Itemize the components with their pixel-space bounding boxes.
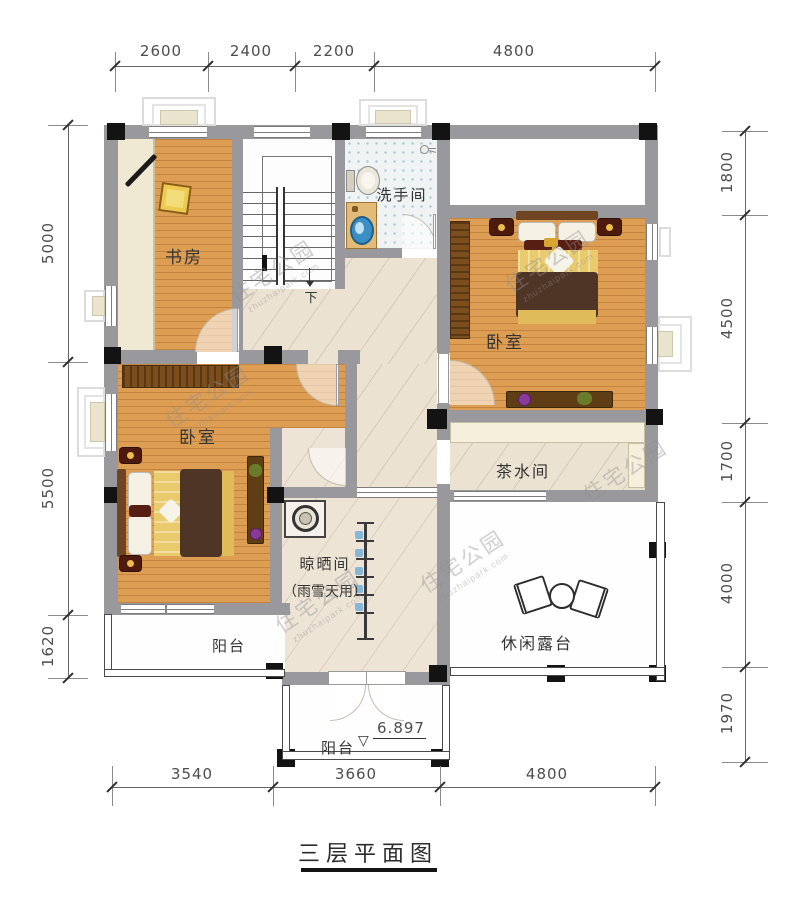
drying-rack-clip — [355, 531, 363, 539]
dim-left-1: 5000 — [39, 213, 57, 273]
stair-down-label: 下 — [300, 287, 324, 306]
hall-corridor-floor — [345, 364, 437, 488]
dim-line-top — [115, 66, 655, 67]
shower-spray — [429, 148, 436, 149]
room-label-bathroom: 洗手间 — [362, 184, 442, 205]
window-top-study — [149, 126, 207, 138]
column — [267, 487, 284, 503]
room-label-study: 书房 — [149, 243, 219, 268]
dim-top-3: 2200 — [304, 42, 364, 60]
room-label-balcony-left: 阳台 — [199, 635, 259, 656]
bench-plant — [249, 464, 262, 477]
bed-right-foot — [518, 310, 596, 324]
balcony-door-mullion — [366, 671, 367, 685]
wall-lamp-glow — [498, 224, 505, 231]
dim-left-3: 1620 — [39, 616, 57, 676]
window-bedroomL-divider — [165, 604, 167, 614]
elevation-triangle-icon: ▽ — [358, 733, 369, 749]
dim-top-2: 2400 — [221, 42, 281, 60]
wall-lamp-glow — [127, 452, 134, 459]
window-tea-bottom — [454, 491, 546, 501]
wall-bath-bottom — [345, 248, 402, 258]
bedroomL-door-leaf — [336, 364, 339, 406]
bathroom-door-leaf — [433, 214, 436, 249]
column — [646, 409, 663, 425]
column — [639, 123, 657, 140]
bench-flower — [250, 528, 262, 540]
dim-right-4: 4000 — [718, 553, 736, 613]
wall-vestibule-bottom — [282, 487, 357, 498]
study-cushion-inner — [165, 189, 185, 208]
balcony-left-rail-side — [104, 614, 112, 677]
bay-window-sill — [92, 296, 105, 316]
drying-rack-bar — [357, 638, 374, 640]
wall-lamp-glow — [127, 560, 134, 567]
dim-right-3: 1700 — [718, 431, 736, 491]
bay-window-sill — [160, 110, 198, 125]
tea-counter-top — [450, 422, 645, 443]
window-top-stair — [254, 126, 310, 138]
room-label-terrace: 休闲露台 — [477, 630, 597, 654]
balcony-door-frame — [328, 671, 406, 685]
bed-left-blanket — [180, 469, 222, 557]
drying-rack-bar — [356, 540, 374, 542]
bay-window-sill — [90, 402, 105, 442]
wardrobe-right-bedroom — [450, 221, 470, 339]
title-underline — [301, 868, 437, 872]
dim-bottom-3: 4800 — [517, 765, 577, 783]
elevation-line — [373, 738, 426, 739]
dim-bottom-1: 3540 — [162, 765, 222, 783]
window-right-lower — [646, 327, 658, 364]
window-left-lower — [105, 394, 117, 451]
bench-flower — [518, 393, 531, 406]
terrace-rail-right — [656, 502, 665, 681]
toilet-icon — [346, 170, 355, 192]
column — [332, 123, 350, 140]
dim-line-left — [68, 125, 69, 678]
dim-bottom-2: 3660 — [326, 765, 386, 783]
dim-right-1: 1800 — [718, 142, 736, 202]
wall-bedroomL-right — [270, 428, 282, 603]
wall-drying-bottom-a — [282, 672, 328, 685]
column — [429, 665, 447, 682]
floor-plan-canvas: 书房 洗手间 卧室 卧室 茶水间 晾晒间 （雨雪天用） 休闲露台 阳台 阳台 下… — [0, 0, 800, 897]
page-title: 三层平面图 — [288, 836, 448, 868]
terrace-table — [549, 583, 575, 609]
shower-icon — [420, 145, 429, 154]
dim-top-1: 2600 — [131, 42, 191, 60]
bed-left-foot — [222, 471, 234, 556]
dim-line-bottom — [112, 787, 655, 788]
sink-basin-highlight — [355, 222, 364, 234]
room-label-tea-room: 茶水间 — [483, 458, 563, 482]
washing-machine-drum-inner — [299, 512, 312, 525]
wall-stair-bath — [335, 139, 345, 289]
balcony-left-rail-bottom — [104, 669, 285, 677]
bed-left-headboard — [117, 469, 126, 557]
dim-top-4: 4800 — [484, 42, 544, 60]
window-right-upper — [646, 224, 658, 260]
drying-rack-bar — [356, 612, 374, 614]
wall-alcove-right — [345, 364, 357, 488]
terrace-rail-bottom — [450, 667, 665, 676]
dim-right-5: 1970 — [718, 683, 736, 743]
wall-bedroomR-left-a — [437, 125, 450, 353]
wall-bedroomR-bottom — [437, 410, 658, 422]
drying-rack-bar — [357, 522, 374, 524]
bench-plant — [577, 392, 592, 405]
bay-window-sill — [375, 110, 411, 124]
room-label-bedroom-right: 卧室 — [470, 328, 540, 353]
column — [107, 123, 125, 140]
window-left-upper — [105, 286, 117, 326]
column — [432, 123, 450, 140]
dim-left-2: 5500 — [39, 458, 57, 518]
window-drying-top — [357, 487, 437, 498]
balcony-front-rail-right — [442, 685, 450, 757]
sink-soap — [352, 206, 358, 212]
window-top-bath — [366, 126, 421, 138]
elevation-value: 6.897 — [374, 719, 428, 737]
dim-right-2: 4500 — [718, 288, 736, 348]
balcony-front-rail-left — [282, 685, 290, 757]
wall-bedroomL-top-c — [338, 350, 360, 364]
wall-left — [104, 125, 118, 615]
bay-window-decor — [659, 227, 671, 257]
bed-left-accent-pillow — [129, 505, 151, 517]
window-bedroomL-bottom — [121, 604, 214, 614]
bay-window-sill — [658, 331, 673, 357]
bedroomR-door-leaf — [438, 353, 449, 404]
bed-left-pillow — [128, 515, 152, 555]
column — [427, 409, 447, 429]
column — [104, 347, 121, 364]
